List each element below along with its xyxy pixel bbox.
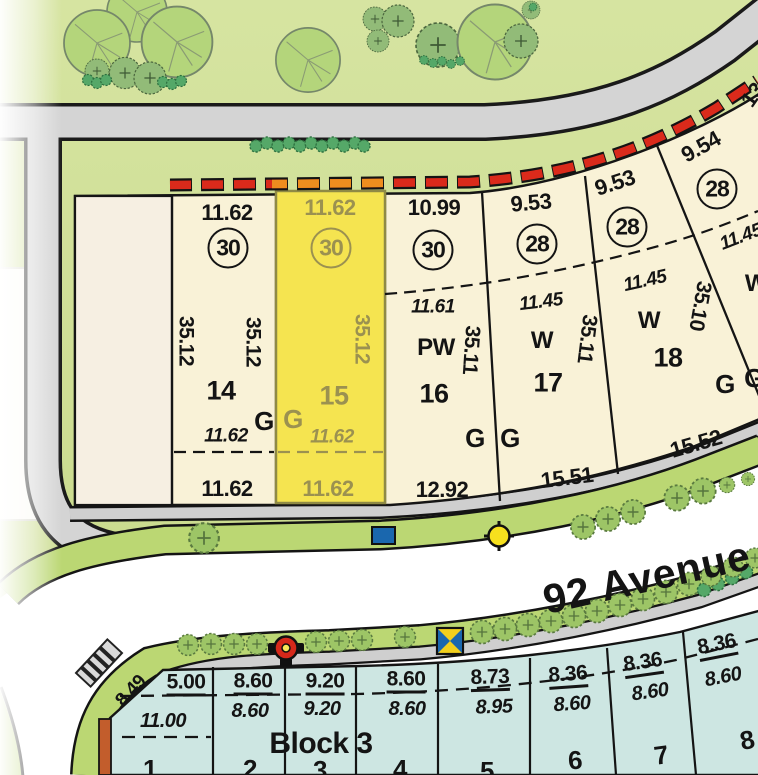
b3lot7-width-top: 8.36 (622, 649, 664, 679)
lot14-garage: G (254, 408, 274, 434)
lot17-frontage: 9.53 (510, 190, 553, 215)
b3lot5-number: 5 (480, 758, 494, 775)
lot16-frontage: 10.99 (408, 197, 461, 219)
lot15-side-right: 35.12 (352, 314, 373, 364)
lot17-number: 17 (533, 370, 562, 397)
catch-basin-marker (437, 628, 463, 654)
b3lot6-width-mid: 8.60 (553, 693, 591, 716)
retaining-wall-marker (99, 719, 111, 775)
lot14-side-right: 35.12 (243, 317, 264, 367)
lot14-frontage: 11.62 (201, 202, 252, 224)
lot17-side-right: 35.11 (574, 313, 601, 364)
b3lot2-width-mid: 8.60 (232, 701, 269, 721)
utility-box-marker (372, 527, 395, 544)
lot17-setback: 11.45 (518, 290, 564, 314)
lot18-plan-circle: 28 (607, 207, 648, 248)
lot14-plan-circle: 30 (208, 228, 249, 269)
lot17-garage: G (500, 425, 520, 451)
b3lot5-width-mid: 8.95 (475, 696, 513, 717)
lot17-grade-code: W (531, 329, 553, 353)
lot18-number: 18 (653, 345, 682, 372)
b3lot3-width-mid: 9.20 (304, 699, 341, 719)
b3lot3-number: 3 (313, 757, 327, 775)
lot16-number: 16 (419, 381, 448, 408)
blank-lot[interactable] (75, 196, 172, 505)
b3lot1-width-mid: 11.00 (140, 711, 186, 731)
b3lot2-number: 2 (243, 756, 257, 775)
b3lot4-width-mid: 8.60 (389, 699, 426, 719)
b3lot6-width-top: 8.36 (548, 662, 589, 690)
lot18-grade-code: W (638, 309, 660, 333)
lot15-number: 15 (319, 383, 348, 410)
b3lot6-number: 6 (567, 747, 583, 774)
lot16-grade-code: PW (417, 336, 455, 360)
b3lot7-width-mid: 8.60 (630, 680, 669, 705)
lot19-grade-code: W (745, 272, 758, 296)
lot15-plan-circle: 30 (311, 228, 352, 269)
lot14-number: 14 (206, 378, 235, 405)
lot16-side-right: 35.11 (459, 325, 483, 375)
b3lot1-width-top: 5.00 (167, 672, 206, 697)
b3lot4-number: 4 (393, 756, 407, 775)
lot16-plan-circle: 30 (413, 230, 454, 271)
lot19-plan-circle: 28 (697, 169, 738, 210)
lot15-rear: 11.62 (302, 478, 353, 500)
lot14-side-left: 35.12 (176, 316, 197, 366)
lot15-setback: 11.62 (310, 428, 354, 447)
b3lot3-width-top: 9.20 (306, 671, 345, 696)
lot15-frontage: 11.62 (304, 197, 355, 219)
lot16-setback: 11.61 (411, 298, 455, 317)
lot14-setback: 11.62 (204, 427, 248, 446)
plat-map: 11.62 30 35.12 35.12 14 G 11.62 11.62 11… (0, 0, 758, 775)
lot16-garage: G (465, 425, 485, 451)
b3lot4-width-top: 8.60 (387, 669, 426, 694)
lot15-garage: G (283, 406, 303, 432)
lot16-rear: 12.92 (416, 479, 469, 501)
left-edge-fade (0, 0, 62, 775)
tree-top-center (276, 28, 340, 92)
b3lot5-width-top: 8.73 (470, 666, 510, 692)
lot14-rear: 11.62 (201, 478, 252, 500)
lot19-garage: G (744, 365, 758, 391)
b3lot2-width-top: 8.60 (234, 671, 273, 696)
lot17-plan-circle: 28 (517, 224, 558, 265)
b3lot1-number: 1 (143, 756, 157, 775)
lot18-garage: G (715, 371, 735, 397)
